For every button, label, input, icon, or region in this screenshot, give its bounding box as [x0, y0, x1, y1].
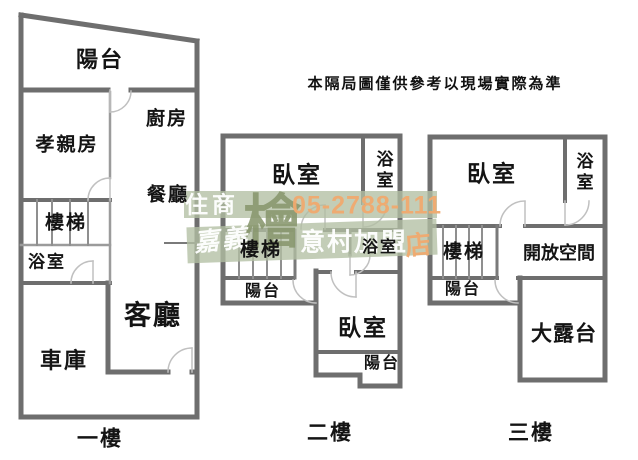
watermark-branch-suffix: 店 — [404, 231, 432, 259]
room-label-bathroom-f3: 浴室 — [575, 152, 592, 194]
room-label-open-space-f3: 開放空間 — [523, 244, 595, 262]
room-label-kitchen-f1: 廚房 — [146, 110, 188, 129]
room-label-terrace-f3: 大露台 — [531, 324, 597, 345]
floor-name-first: 一樓 — [77, 429, 123, 450]
room-label-stairs-f3: 樓梯 — [443, 243, 485, 262]
watermark-brand-line1: 住商 — [185, 194, 239, 217]
room-label-garage-f1: 車庫 — [40, 350, 88, 372]
room-label-balcony-left-f2: 陽台 — [245, 284, 281, 300]
room-label-bathroom-top-f2: 浴室 — [375, 150, 392, 192]
room-label-bedroom-bottom-f2: 臥室 — [338, 317, 388, 340]
floor-name-third: 三樓 — [508, 423, 554, 444]
room-label-bedroom-top-f2: 臥室 — [272, 164, 322, 187]
room-label-parents-room-f1: 孝親房 — [35, 136, 98, 155]
room-label-stairs-f1: 樓梯 — [45, 214, 87, 233]
room-label-balcony-f1: 陽台 — [76, 49, 124, 71]
room-label-bathroom-f1: 浴室 — [28, 254, 66, 271]
room-label-stairs-f2: 樓梯 — [240, 241, 282, 260]
room-label-balcony-f3: 陽台 — [445, 282, 481, 298]
room-label-bathroom-mid-f2: 浴室 — [362, 240, 398, 256]
room-label-living-f1: 客廳 — [124, 303, 182, 330]
room-label-bedroom-f3: 臥室 — [467, 163, 517, 186]
room-label-dining-f1: 餐廳 — [147, 186, 189, 205]
floor-name-second: 二樓 — [307, 423, 353, 444]
floorplan-page: 檜 住商 05-2788-111 嘉義 意村加盟 店 本隔局圖僅供參考以現場實際… — [0, 0, 638, 460]
disclaimer-text: 本隔局圖僅供參考以現場實際為準 — [307, 73, 562, 94]
watermark-phone: 05-2788-111 — [292, 194, 442, 219]
room-label-balcony-bottom-f2: 陽台 — [364, 356, 400, 372]
